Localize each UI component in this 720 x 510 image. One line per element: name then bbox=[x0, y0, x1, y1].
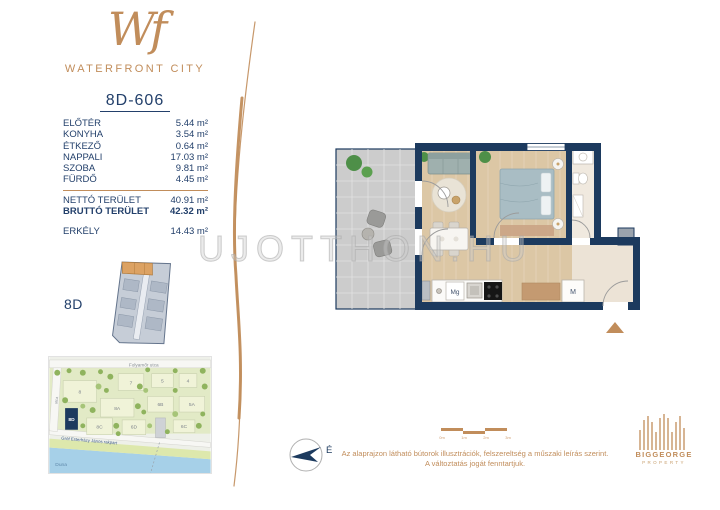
brand-logo: Wf bbox=[58, 0, 212, 58]
washing-machine-label: Mg bbox=[450, 289, 459, 296]
plant-icon bbox=[346, 155, 362, 171]
disclaimer-line1: Az alaprajzon látható bútorok illusztrác… bbox=[330, 449, 620, 459]
svg-text:4: 4 bbox=[187, 379, 190, 385]
watermark: UJOTTHON.HU bbox=[198, 228, 528, 270]
window bbox=[527, 144, 565, 151]
room-area: 3.54 m² bbox=[176, 129, 208, 140]
table-row: ÉTKEZŐ0.64 m² bbox=[63, 141, 208, 152]
developer-name: BIGGEORGE bbox=[622, 450, 706, 459]
plant-icon bbox=[362, 167, 373, 178]
scale-bar: 0m 1m 2m 3m bbox=[438, 425, 514, 443]
room-area: 0.64 m² bbox=[176, 141, 208, 152]
side-table bbox=[452, 196, 460, 204]
svg-text:0m: 0m bbox=[439, 435, 445, 440]
site-map: 8 7 5 4 8A 6B 5A 8D 8C 6D 6C Folyamőr ut… bbox=[48, 356, 212, 474]
table-row: NAPPALI17.03 m² bbox=[63, 152, 208, 163]
faucet-icon bbox=[437, 289, 442, 294]
total-area: 40.91 m² bbox=[171, 195, 209, 206]
disclaimer-line2: A változtatás jogát fenntartjuk. bbox=[330, 459, 620, 469]
map-street-left-label: utca bbox=[53, 396, 59, 405]
total-area: 42.32 m² bbox=[170, 206, 208, 217]
room-label: SZOBA bbox=[63, 163, 95, 174]
table-row-net: NETTÓ TERÜLET40.91 m² bbox=[63, 195, 208, 206]
svg-text:7: 7 bbox=[130, 381, 133, 387]
keyplan-label: 8D bbox=[64, 296, 83, 312]
unit-id-text: 8D-606 bbox=[100, 92, 170, 112]
svg-text:2m: 2m bbox=[483, 435, 489, 440]
svg-text:5: 5 bbox=[161, 379, 164, 385]
svg-text:8C: 8C bbox=[96, 425, 103, 431]
room-area: 5.44 m² bbox=[176, 118, 208, 129]
washbasin bbox=[573, 150, 593, 164]
table-row-balcony: ERKÉLY14.43 m² bbox=[63, 226, 208, 237]
total-label: NETTÓ TERÜLET bbox=[63, 195, 141, 206]
toilet bbox=[573, 173, 588, 184]
disclaimer: Az alaprajzon látható bútorok illusztrác… bbox=[330, 449, 620, 469]
svg-text:6C: 6C bbox=[181, 424, 188, 430]
room-label: KONYHA bbox=[63, 129, 103, 140]
svg-text:1m: 1m bbox=[461, 435, 467, 440]
room-label: ELŐTÉR bbox=[63, 118, 101, 129]
room-area: 4.45 m² bbox=[176, 174, 208, 185]
scale-labels: 0m 1m 2m 3m bbox=[439, 435, 511, 440]
plan-marker-triangle bbox=[606, 322, 624, 333]
developer-logo-icon bbox=[634, 410, 690, 450]
room-label: ERKÉLY bbox=[63, 226, 100, 237]
table-row: KONYHA3.54 m² bbox=[63, 129, 208, 140]
room-label: ÉTKEZŐ bbox=[63, 141, 101, 152]
total-label: BRUTTÓ TERÜLET bbox=[63, 206, 149, 217]
svg-text:3m: 3m bbox=[505, 435, 511, 440]
svg-text:8D: 8D bbox=[68, 417, 75, 423]
svg-text:8: 8 bbox=[78, 389, 81, 395]
svg-text:8A: 8A bbox=[114, 406, 121, 412]
room-area: 9.81 m² bbox=[176, 163, 208, 174]
developer-subtitle: PROPERTY bbox=[622, 460, 706, 465]
brand-name: WATERFRONT CITY bbox=[50, 63, 220, 75]
map-street-top-label: Folyamőr utca bbox=[129, 362, 159, 367]
plant-icon bbox=[479, 151, 491, 163]
wardrobe-label: M bbox=[570, 289, 576, 296]
datasheet-page: Wf WATERFRONT CITY 8D-606 ELŐTÉR5.44 m² … bbox=[0, 0, 720, 510]
table-row: SZOBA9.81 m² bbox=[63, 163, 208, 174]
table-divider bbox=[63, 190, 208, 191]
table-row-gross: BRUTTÓ TERÜLET42.32 m² bbox=[63, 206, 208, 217]
keyplan-diagram bbox=[98, 254, 190, 352]
table-row: FÜRDŐ4.45 m² bbox=[63, 174, 208, 185]
table-row: ELŐTÉR5.44 m² bbox=[63, 118, 208, 129]
svg-text:6B: 6B bbox=[157, 402, 164, 408]
room-label: FÜRDŐ bbox=[63, 174, 97, 185]
svg-text:6D: 6D bbox=[131, 425, 138, 431]
svg-text:5A: 5A bbox=[189, 402, 196, 408]
kitchen-counter: Mg bbox=[422, 280, 502, 302]
radiator bbox=[422, 281, 430, 300]
room-area: 17.03 m² bbox=[171, 152, 209, 163]
map-river-label: Duna bbox=[55, 462, 67, 468]
room-label: NAPPALI bbox=[63, 152, 102, 163]
unit-id: 8D-606 bbox=[58, 92, 212, 110]
area-table: ELŐTÉR5.44 m² KONYHA3.54 m² ÉTKEZŐ0.64 m… bbox=[63, 118, 208, 238]
keyplan-building bbox=[110, 256, 177, 349]
entry-hall: M bbox=[522, 280, 584, 302]
cooktop bbox=[484, 282, 502, 300]
doormat bbox=[522, 283, 560, 300]
